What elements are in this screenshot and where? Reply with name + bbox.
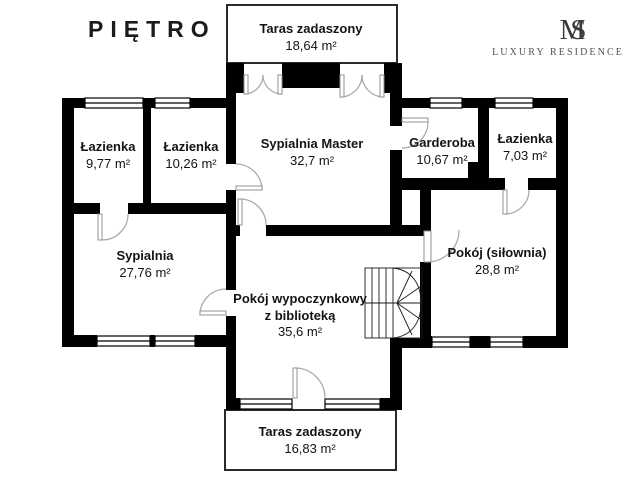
room-label-lounge-library: Pokój wypoczynkowy z biblioteką 35,6 m² [233,291,367,341]
walls [62,63,568,410]
door-arcs [102,75,529,398]
room-label-master-bedroom: Sypialnia Master 32,7 m² [261,136,364,169]
room-name-line-2: z biblioteką [233,308,367,325]
page-title: PIĘTRO [88,16,216,43]
room-name: Sypialnia [116,248,173,265]
room-area: 7,03 m² [498,148,553,165]
room-name: Łazienka [498,131,553,148]
room-name: Taras zadaszony [259,21,362,38]
room-name: Łazienka [81,139,136,156]
room-label-wardrobe: Garderoba 10,67 m² [409,135,475,168]
door-leaves [98,75,507,398]
room-label-bathroom-2: Łazienka 10,26 m² [164,139,219,172]
room-label-terrace-bottom: Taras zadaszony 16,83 m² [258,424,361,457]
room-area: 27,76 m² [116,265,173,282]
room-area: 28,8 m² [448,262,547,279]
room-area: 9,77 m² [81,156,136,173]
floor-plan: PIĘTRO MS LUXURY RESIDENCE Taras zadaszo… [0,0,640,480]
brand-logo: MS LUXURY RESIDENCE [489,17,627,58]
room-label-terrace-top: Taras zadaszony 18,64 m² [259,21,362,54]
room-name: Łazienka [164,139,219,156]
spiral-staircase [365,268,422,338]
room-area: 35,6 m² [233,324,367,341]
room-area: 18,64 m² [259,38,362,55]
room-label-bedroom: Sypialnia 27,76 m² [116,248,173,281]
room-name: Taras zadaszony [258,424,361,441]
room-label-gym-room: Pokój (siłownia) 28,8 m² [448,245,547,278]
room-name: Pokój (siłownia) [448,245,547,262]
brand-name: LUXURY RESIDENCE [489,47,627,58]
room-label-bathroom-1: Łazienka 9,77 m² [81,139,136,172]
room-label-bathroom-3: Łazienka 7,03 m² [498,131,553,164]
doors [98,75,529,398]
floor-plan-drawing [0,0,640,480]
room-area: 10,26 m² [164,156,219,173]
room-name: Sypialnia Master [261,136,364,153]
brand-monogram-icon: MS [489,17,627,44]
room-area: 16,83 m² [258,441,361,458]
room-area: 32,7 m² [261,153,364,170]
room-name: Pokój wypoczynkowy [233,291,367,308]
room-area: 10,67 m² [409,152,475,169]
room-name: Garderoba [409,135,475,152]
